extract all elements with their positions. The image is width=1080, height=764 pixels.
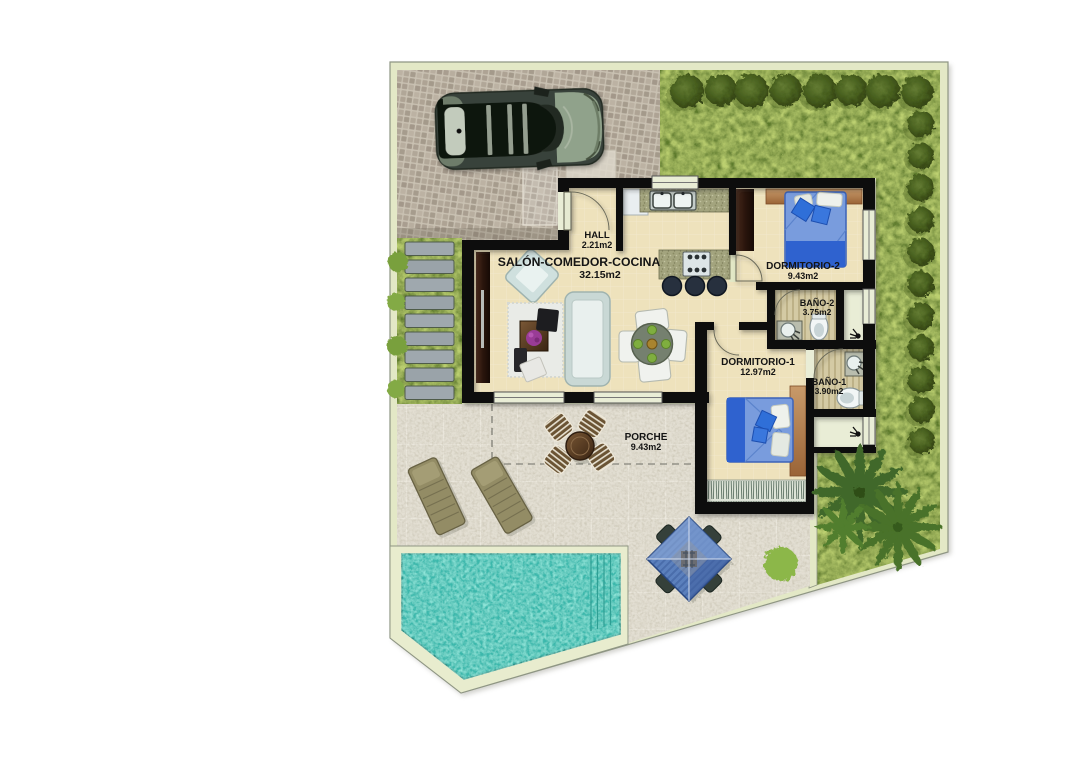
- svg-text:3.90m2: 3.90m2: [815, 386, 844, 396]
- svg-text:12.97m2: 12.97m2: [740, 367, 776, 377]
- svg-text:2.21m2: 2.21m2: [582, 240, 613, 250]
- svg-text:SALÓN-COMEDOR-COCINA: SALÓN-COMEDOR-COCINA: [498, 254, 661, 269]
- svg-text:9.43m2: 9.43m2: [631, 442, 662, 452]
- svg-text:3.75m2: 3.75m2: [803, 307, 832, 317]
- svg-text:32.15m2: 32.15m2: [579, 269, 621, 281]
- svg-text:9.43m2: 9.43m2: [788, 271, 819, 281]
